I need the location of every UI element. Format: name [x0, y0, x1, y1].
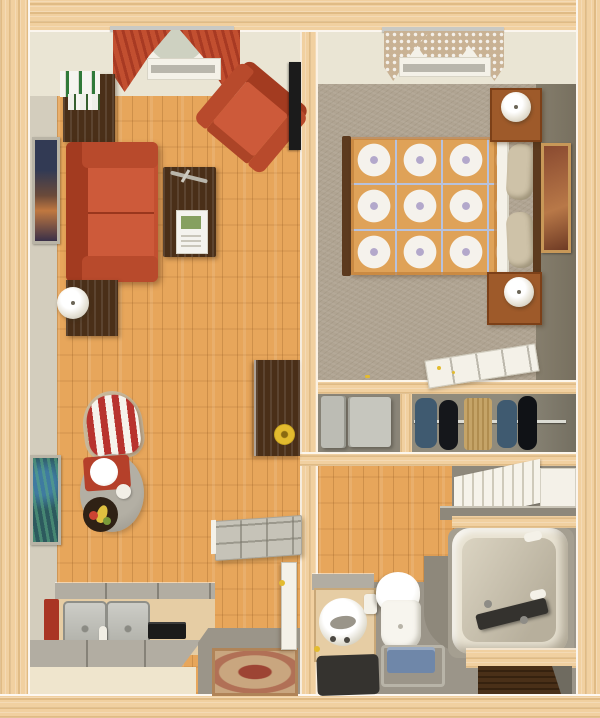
fruit-pear	[103, 517, 111, 525]
wall-tv	[289, 62, 301, 150]
outer-wall-left	[0, 0, 30, 718]
black-cooktop	[148, 622, 186, 639]
alcove-wall-band	[466, 648, 576, 668]
hanging-clothes-black-2	[518, 396, 537, 450]
magazine	[176, 210, 208, 254]
tub-faucet-knob-1	[484, 600, 492, 608]
tea-cup	[116, 484, 131, 499]
hanging-clothes-blue-2	[497, 400, 517, 448]
sofa-cushion-1	[88, 168, 154, 214]
hanging-garment-tan	[464, 398, 492, 450]
washer	[321, 396, 346, 448]
fruit-apple	[89, 511, 98, 520]
drop-leaf-panel-table	[215, 515, 302, 561]
outer-wall-bottom	[0, 694, 600, 718]
open-white-entry-door	[281, 562, 297, 650]
wall-art-sunset	[32, 137, 60, 244]
sink-knob-1	[330, 636, 336, 642]
sofa-arm-top	[82, 142, 158, 168]
sofa-arm-bottom	[82, 256, 158, 282]
door-wreath	[274, 424, 295, 445]
bed-headboard	[533, 139, 541, 275]
dinner-plate	[90, 458, 118, 486]
carpet-gold-speck-2	[452, 371, 455, 374]
tub-faucet-knob-2	[520, 616, 528, 624]
carpet-gold-speck-1	[437, 366, 441, 370]
kitchen-front-counter-top	[30, 640, 202, 667]
hanging-clothes-black-1	[439, 400, 458, 450]
floor-plan	[0, 0, 600, 718]
sofa-cushion-2	[88, 214, 154, 256]
wall-art-teal-abstract	[30, 455, 61, 545]
living-window-sill-bar	[151, 65, 215, 73]
toilet-flush-dot	[398, 624, 403, 629]
kitchen-front-counter-base	[30, 667, 196, 694]
bath-closet-wall	[452, 516, 576, 528]
red-dish-towel	[44, 599, 59, 641]
magazine-picture	[181, 216, 201, 229]
end-table-lamp	[57, 287, 89, 319]
entry-door-knob	[279, 580, 285, 586]
nightstand-lamp-upper	[501, 92, 531, 122]
red-sofa	[66, 142, 158, 282]
vanity-gold-knob	[314, 646, 320, 652]
bed-foot-rail	[342, 136, 351, 276]
outer-wall-top	[0, 0, 600, 32]
nightstand-lamp-lower	[504, 277, 534, 307]
bed-patchwork-quilt	[351, 137, 497, 275]
dryer	[348, 397, 391, 447]
bedroom-window-sill-bar	[403, 64, 485, 72]
bedroom-wall-art	[541, 143, 571, 253]
kitchen-back-counter-top	[55, 583, 215, 599]
hanging-clothes-blue-1	[415, 398, 437, 448]
oriental-door-mat	[212, 648, 298, 696]
bed-pillow-2	[506, 211, 536, 268]
outer-wall-right	[576, 0, 600, 718]
fruit-bowl	[83, 497, 118, 532]
carpet-gold-speck-3	[365, 375, 370, 378]
sink-knob-2	[344, 637, 350, 643]
shower-stool-seat	[387, 647, 435, 673]
bed-pillow-1	[506, 143, 536, 200]
closet-divider-wall	[400, 394, 412, 452]
magazine-lines	[181, 233, 201, 247]
dark-floor-mat	[316, 654, 379, 696]
drop-leaf-edge	[211, 520, 216, 554]
books-row-2	[68, 94, 100, 110]
